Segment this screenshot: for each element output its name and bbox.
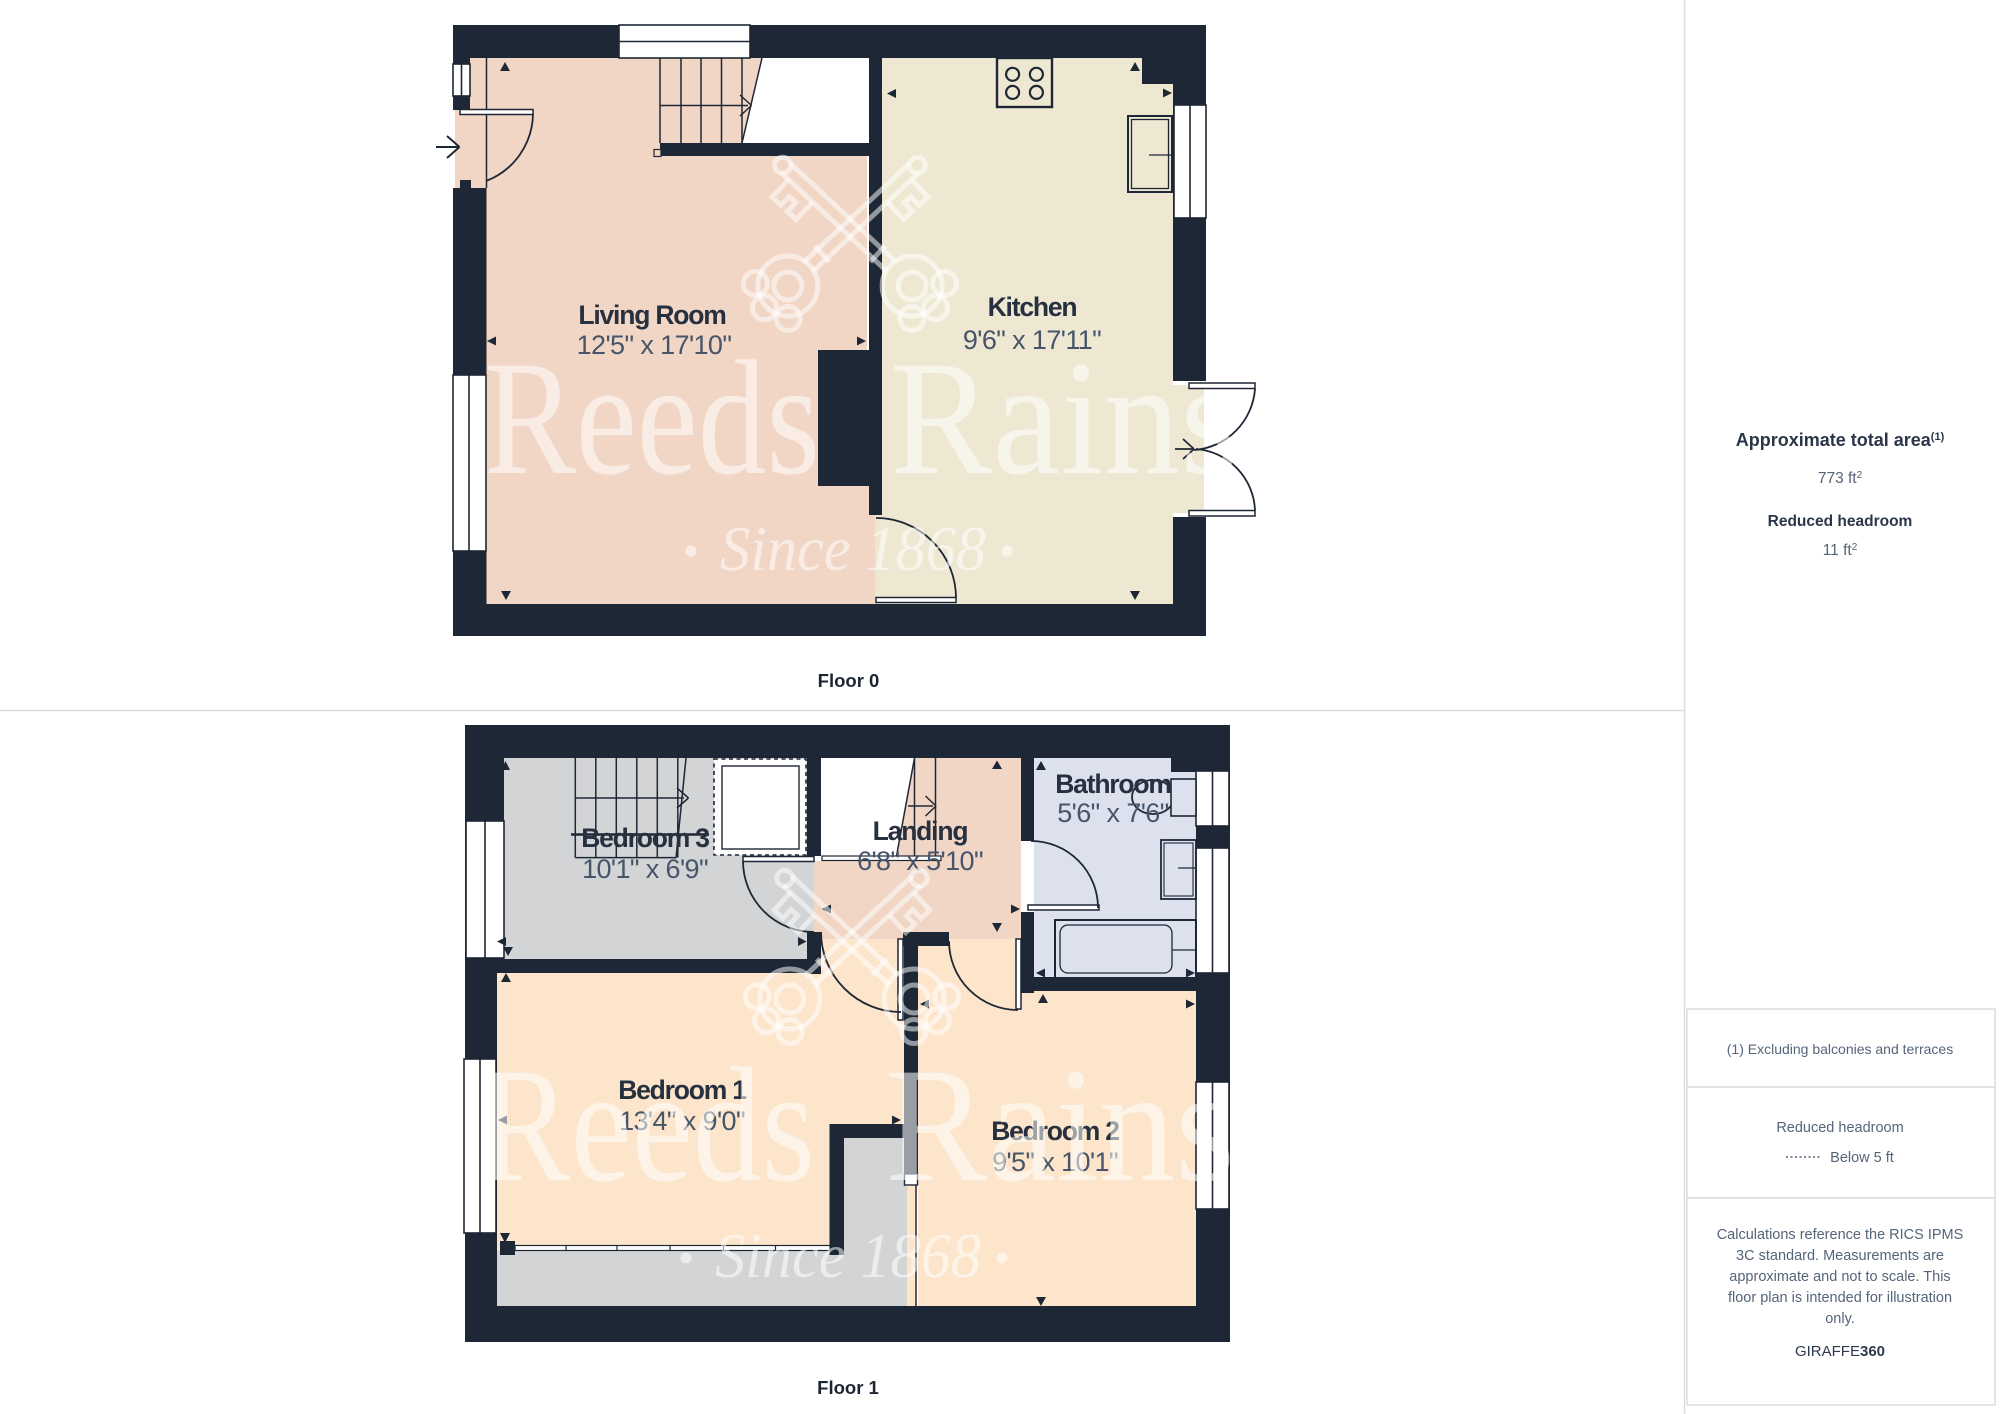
- svg-text:Kitchen: Kitchen: [988, 292, 1077, 322]
- svg-text:Reduced headroom: Reduced headroom: [1776, 1120, 1903, 1136]
- svg-text:3C standard. Measurements are: 3C standard. Measurements are: [1736, 1248, 1944, 1264]
- svg-text:5'6" x 7'6": 5'6" x 7'6": [1057, 798, 1168, 828]
- svg-text:Below 5 ft: Below 5 ft: [1830, 1150, 1894, 1166]
- svg-text:approximate and not to scale.: approximate and not to scale. This: [1729, 1269, 1950, 1285]
- svg-text:Bedroom 3: Bedroom 3: [581, 823, 709, 853]
- svg-text:Approximate total area(1): Approximate total area(1): [1736, 430, 1945, 450]
- svg-text:Reduced headroom: Reduced headroom: [1768, 513, 1913, 530]
- svg-text:floor plan is intended for ill: floor plan is intended for illustration: [1728, 1290, 1952, 1306]
- svg-text:Floor 1: Floor 1: [817, 1377, 879, 1398]
- svg-text:(1) Excluding balconies and te: (1) Excluding balconies and terraces: [1727, 1041, 1953, 1057]
- svg-text:GIRAFFE360: GIRAFFE360: [1795, 1343, 1885, 1360]
- svg-text:10'1" x 6'9": 10'1" x 6'9": [582, 854, 708, 884]
- svg-text:Living Room: Living Room: [578, 300, 725, 330]
- svg-text:773 ft2: 773 ft2: [1818, 470, 1863, 487]
- svg-text:Bathroom: Bathroom: [1055, 769, 1171, 799]
- svg-text:Landing: Landing: [873, 816, 968, 846]
- svg-text:Floor 0: Floor 0: [818, 670, 880, 691]
- svg-text:Calculations reference the RIC: Calculations reference the RICS IPMS: [1717, 1227, 1964, 1243]
- svg-text:only.: only.: [1825, 1311, 1855, 1327]
